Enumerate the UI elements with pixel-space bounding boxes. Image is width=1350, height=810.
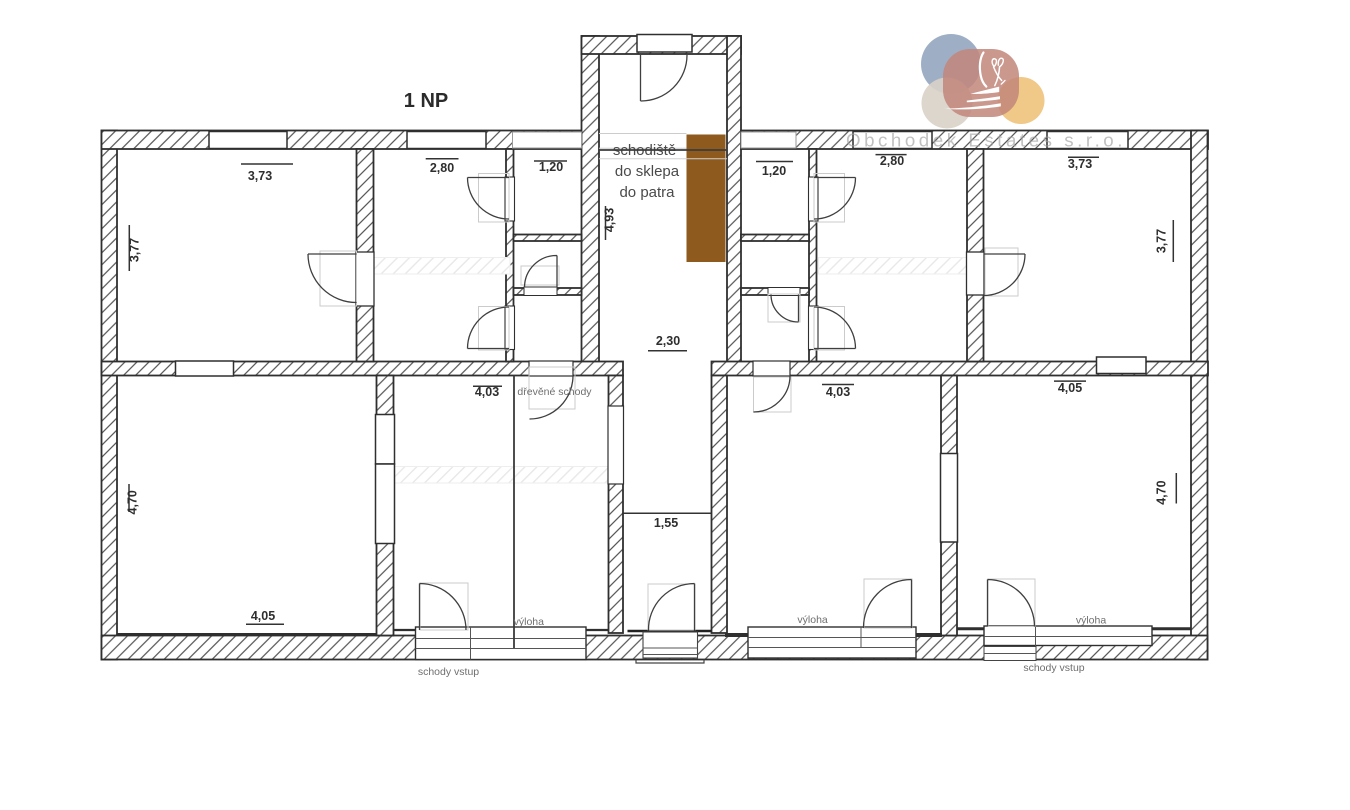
svg-text:2,30: 2,30: [656, 334, 680, 348]
svg-text:4,03: 4,03: [475, 385, 499, 399]
svg-text:do sklepa: do sklepa: [615, 163, 680, 180]
svg-text:4,70: 4,70: [126, 490, 140, 514]
svg-text:4,03: 4,03: [826, 385, 850, 399]
svg-text:do patra: do patra: [619, 184, 675, 201]
svg-text:1,20: 1,20: [539, 160, 563, 174]
svg-text:1,55: 1,55: [654, 516, 678, 530]
svg-text:výloha: výloha: [514, 616, 545, 628]
svg-text:1 NP: 1 NP: [404, 90, 448, 112]
svg-text:Obchodek Estates s.r.o.: Obchodek Estates s.r.o.: [846, 131, 1126, 151]
svg-text:2,80: 2,80: [430, 161, 454, 175]
svg-text:schody vstup: schody vstup: [418, 666, 479, 678]
svg-text:3,73: 3,73: [248, 169, 272, 183]
svg-text:3,73: 3,73: [1068, 157, 1092, 171]
svg-text:1,20: 1,20: [762, 164, 786, 178]
svg-text:4,05: 4,05: [1058, 381, 1082, 395]
svg-text:výloha: výloha: [797, 614, 828, 626]
svg-text:3,77: 3,77: [128, 238, 142, 262]
svg-text:4,93: 4,93: [603, 208, 617, 232]
svg-text:3,77: 3,77: [1155, 229, 1169, 253]
svg-text:výloha: výloha: [1076, 615, 1107, 627]
svg-text:dřevěné schody: dřevěné schody: [517, 386, 592, 398]
svg-text:4,70: 4,70: [1155, 480, 1169, 504]
svg-text:2,80: 2,80: [880, 154, 904, 168]
svg-text:4,05: 4,05: [251, 609, 275, 623]
svg-text:schody vstup: schody vstup: [1023, 662, 1084, 674]
